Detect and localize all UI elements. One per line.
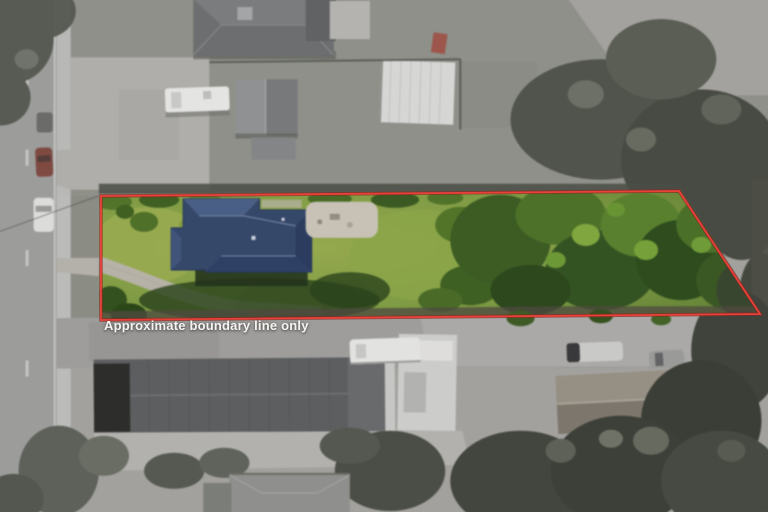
aerial-photo: Approximate boundary line only (0, 0, 768, 512)
boundary-line-shadow (101, 191, 760, 320)
boundary-line (101, 191, 760, 320)
boundary-label: Approximate boundary line only (104, 318, 309, 333)
boundary-overlay (0, 0, 768, 512)
